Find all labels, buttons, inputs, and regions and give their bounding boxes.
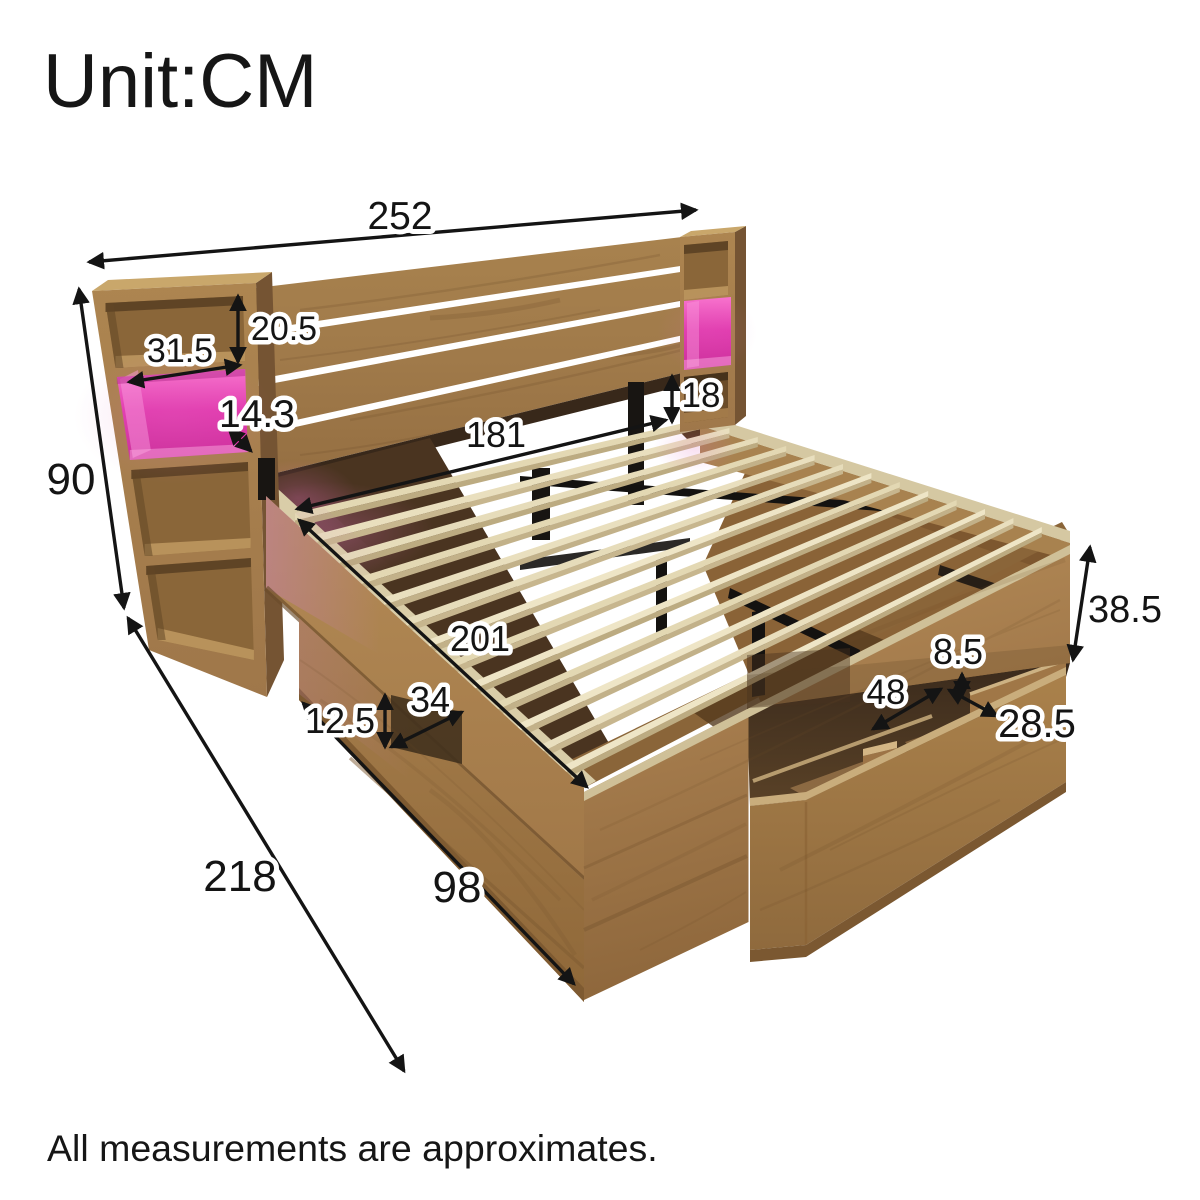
svg-text:14.3: 14.3 [219,393,295,436]
svg-text:Unit:CM: Unit:CM [43,39,317,124]
svg-text:48: 48 [867,673,906,712]
svg-text:20.5: 20.5 [251,310,317,348]
svg-text:8.5: 8.5 [933,631,983,672]
svg-text:18: 18 [682,376,721,415]
svg-text:38.5: 38.5 [1088,589,1162,631]
svg-text:90: 90 [47,455,96,504]
svg-text:28.5: 28.5 [998,702,1076,746]
svg-text:201: 201 [450,618,510,659]
svg-text:31.5: 31.5 [147,332,213,370]
svg-text:34: 34 [410,679,450,720]
svg-text:98: 98 [433,863,482,912]
svg-text:181: 181 [466,414,526,455]
svg-text:12.5: 12.5 [305,700,375,741]
svg-text:218: 218 [203,852,276,901]
svg-text:252: 252 [367,195,432,238]
svg-text:All measurements are approxima: All measurements are approximates. [47,1127,658,1169]
